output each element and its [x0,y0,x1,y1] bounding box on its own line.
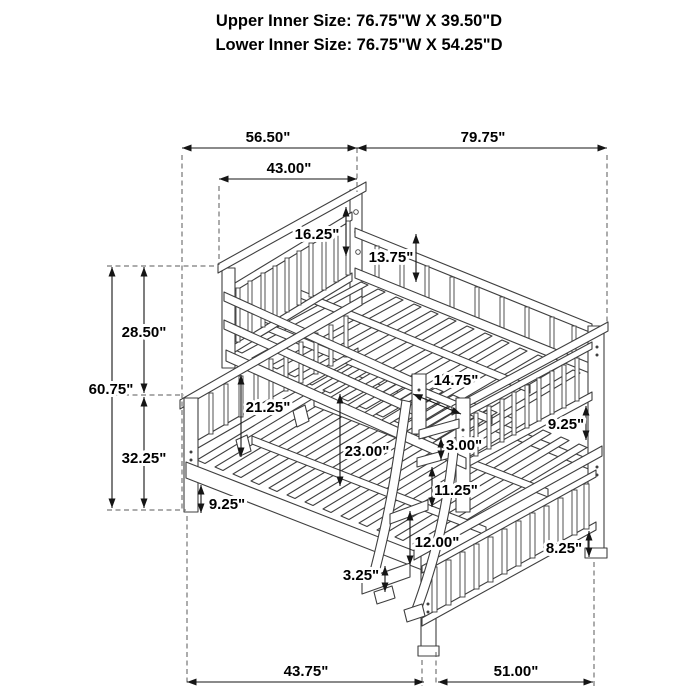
dim-label-upper-footboard-panel: 9.25" [548,416,584,433]
dimension-diagram: Upper Inner Size: 76.75"W X 39.50"D Lowe… [0,0,700,700]
lower-inner-size-title: Lower Inner Size: 76.75"W X 54.25"D [215,36,502,54]
dim-label-upper-rung-spacing: 11.25" [434,482,478,499]
dim-label-lower-leg-height: 8.25" [546,540,582,557]
dim-label-ladder-opening-width: 14.75" [434,372,479,389]
dim-label-step-gap: 3.00" [446,437,482,454]
dim-label-lower-guard-height: 21.25" [246,399,291,416]
dim-label-upper-bunk-depth: 43.00" [267,160,312,177]
dimension-overall-depth: 56.50" [182,129,357,148]
dimension-lower-side-span: 51.00" [438,663,593,682]
diagram-canvas: Upper Inner Size: 76.75"W X 39.50"D Lowe… [0,0,700,700]
dim-label-upper-rail-to-deck: 13.75" [369,249,414,266]
dim-label-upper-section-height: 28.50" [122,324,167,341]
dim-label-upper-guard-height: 16.25" [295,226,340,243]
dimension-upper-section-height: 28.50" [122,267,167,393]
upper-inner-size-title: Upper Inner Size: 76.75"W X 39.50"D [216,12,502,30]
right-back-post-foot [585,548,607,558]
dim-label-overall-height: 60.75" [89,381,134,398]
dim-label-under-bunk-clearance: 23.00" [345,443,390,460]
dim-label-lower-front-span: 43.75" [284,663,329,680]
title-block: Upper Inner Size: 76.75"W X 39.50"D Lowe… [215,12,502,54]
dimension-upper-bunk-depth: 43.00" [219,160,357,179]
dim-label-side-rail-to-floor: 9.25" [209,496,245,513]
dimension-overall-height: 60.75" [89,267,134,508]
dim-label-overall-length: 79.75" [461,129,506,146]
dim-label-lower-side-span: 51.00" [494,663,539,680]
dim-label-lower-section-height: 32.25" [122,450,167,467]
dimension-lower-front-span: 43.75" [187,663,424,682]
upper-headboard-cap [218,182,366,273]
dim-label-lower-rung-spacing: 12.00" [415,534,460,551]
dimension-overall-length: 79.75" [357,129,607,148]
dowel-hole [356,250,361,255]
lower-headboard-front-post [184,398,198,512]
dim-label-overall-depth: 56.50" [246,129,291,146]
ladder-post [412,374,426,434]
dowel-hole [354,210,359,215]
dimension-lower-section-height: 32.25" [122,397,167,508]
dim-label-bottom-step-height: 3.25" [343,567,379,584]
